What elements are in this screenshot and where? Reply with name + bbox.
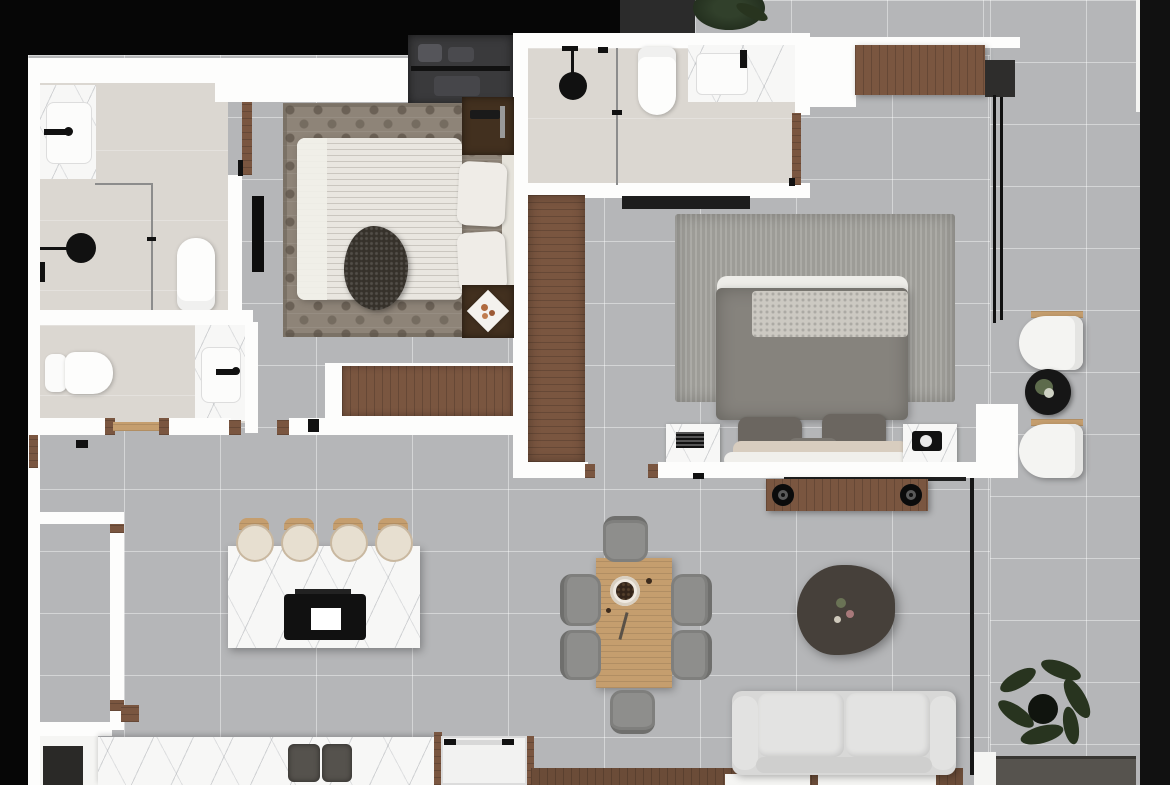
sofa-cushion-left [758, 693, 844, 757]
media-bench-speaker-right [900, 484, 922, 506]
dining-bowl-beans [616, 582, 634, 600]
wall-bathroom1-bottom [28, 310, 253, 325]
master-dark-cabinet [985, 60, 1015, 97]
bathroom2-mixer-tap [598, 47, 608, 53]
dining-chair-left-1 [560, 574, 601, 626]
bathroom2-shower-head [559, 72, 587, 100]
bedroom1-sheet-fold [297, 138, 327, 300]
sofa-armrest-right [930, 696, 956, 770]
bedroom1-pillow-top [456, 161, 507, 227]
kitchen-door-frame-piece [121, 705, 139, 722]
door-stop-mark [308, 419, 319, 432]
bathroom2-doormat [622, 196, 750, 209]
dining-chair-bottom [610, 690, 655, 734]
bedroom1-door-jamb-right [277, 420, 289, 435]
nightstand-top-metal-decor [500, 106, 505, 138]
bathroom2-shower-arm [571, 48, 574, 74]
floor-plan [0, 0, 1170, 785]
master-bed-knit-throw [752, 291, 908, 337]
wall-master-top-corner [810, 37, 856, 107]
lounge-chair-2 [1019, 424, 1083, 478]
wardrobe-clothes-3 [434, 76, 480, 96]
wall-top-bedroom1 [215, 58, 408, 102]
service-shaft [620, 0, 695, 35]
bedroom1-wall-tv [252, 196, 264, 272]
bedroom1-door-jamb-left [229, 420, 241, 435]
bathroom2-glass-partition [616, 48, 618, 185]
master-wardrobe-tall [528, 195, 585, 462]
barstool-seat-1 [236, 524, 274, 562]
barstool-seat-4 [375, 524, 413, 562]
kitchen-counter [98, 737, 435, 785]
dining-bean-stray-1 [646, 578, 652, 584]
wall-bathroom1-right-lower [228, 175, 242, 312]
island-cooktop-center [311, 608, 341, 630]
bedroom1-fur-throw [344, 226, 408, 310]
bedroom1-dresser [342, 366, 513, 416]
wall-powder-right [245, 322, 258, 433]
master-door-jamb-left [585, 464, 595, 478]
tray-flower-2 [489, 310, 495, 316]
dining-bean-stray-2 [606, 608, 611, 613]
powder-toilet-bowl [65, 352, 113, 394]
bathroom1-glass-handle [147, 237, 156, 241]
powder-sink [201, 347, 241, 403]
wall-master-bottom [658, 462, 990, 478]
appliance-handle-right [502, 739, 514, 745]
bedroom1-wardrobe-rail [411, 66, 510, 71]
utility-wall-bottom [40, 722, 112, 736]
bedroom1-pillow-bottom [456, 231, 507, 293]
dining-chair-top [603, 516, 648, 562]
barstool-seat-2 [281, 524, 319, 562]
sofa-armrest-left [732, 696, 758, 770]
wardrobe-clothes-2 [448, 47, 474, 62]
powder-door-jamb-right [159, 418, 169, 435]
bathroom2-door-leaf [792, 113, 801, 185]
wardrobe-clothes-1 [418, 44, 442, 62]
master-wardrobe-endcap [528, 462, 588, 478]
appliance-handle-left [444, 739, 456, 745]
media-bench-speaker-left [772, 484, 794, 506]
master-camera-lens [920, 435, 932, 447]
left-wall-wood-trim [29, 434, 38, 468]
side-table-flower-decor [1044, 388, 1054, 398]
bathroom2-glass-handle [612, 110, 622, 115]
bathroom1-door-leaf [242, 102, 252, 175]
utility-wall-top [40, 512, 112, 524]
window-mullion-top-b [1000, 97, 1003, 320]
bathroom1-shower-head [66, 233, 96, 263]
kitchen-sink-right [322, 744, 352, 782]
wall-hall-seg2 [169, 418, 231, 435]
bathroom1-door-hinge [238, 160, 243, 176]
door-hinge-mark [76, 440, 88, 448]
coffee-table-flower-3 [834, 616, 841, 623]
tray-flower-1 [481, 304, 488, 311]
sofa-cushion-right [846, 693, 930, 757]
powder-door-threshold [113, 422, 161, 431]
balcony-sideboard [996, 756, 1136, 785]
powder-toilet-tank [45, 354, 67, 392]
dining-table [596, 558, 672, 688]
window-sill-2 [818, 774, 936, 785]
tray-flower-3 [482, 313, 488, 319]
kitchen-sink-left [288, 744, 320, 782]
barstool-seat-3 [330, 524, 368, 562]
bedroom1-nightstand-top [462, 97, 514, 155]
master-door-hinge [693, 473, 704, 479]
bathroom2-shower-handle [562, 46, 578, 51]
dining-chair-left-2 [560, 630, 601, 680]
bathroom1-glass-partition-h [95, 183, 153, 185]
master-door-jamb-right [648, 464, 658, 478]
utility-wall-right [110, 512, 124, 730]
balcony-plant-pot [1028, 694, 1058, 724]
bathroom1-faucet-knob [64, 127, 73, 136]
dining-chair-right-1 [671, 574, 712, 626]
bathroom2-faucet [740, 50, 747, 68]
wall-bathroom2-left [513, 33, 528, 198]
coffee-table-flower-1 [836, 598, 846, 608]
right-facade-black [1140, 0, 1170, 785]
master-nightstand-left-decor [676, 432, 704, 448]
utility-jamb-top [110, 524, 124, 533]
sideboard-wall-pier [974, 752, 996, 785]
nightstand-top-tray-decor [470, 110, 500, 119]
window-pier-mid [976, 404, 1018, 478]
bathroom2-toilet [638, 47, 676, 115]
wall-hall-seg1 [28, 418, 108, 435]
window-sill-1 [725, 774, 810, 785]
sofa-back [756, 757, 932, 773]
bathroom1-glass-partition-v [151, 183, 153, 311]
bathroom1-toilet [177, 238, 215, 311]
wall-top-bathroom1 [28, 58, 225, 83]
window-mullion-lower [970, 478, 974, 775]
bathroom2-door-hinge [789, 178, 795, 186]
window-mullion-top-a [993, 95, 996, 323]
dining-chair-right-2 [671, 630, 712, 680]
master-wood-console [855, 45, 985, 95]
lounge-chair-1 [1019, 316, 1083, 370]
coffee-table-flower-2 [846, 610, 854, 618]
kitchen-dark-appliance [43, 746, 83, 785]
powder-faucet-knob [232, 367, 240, 375]
